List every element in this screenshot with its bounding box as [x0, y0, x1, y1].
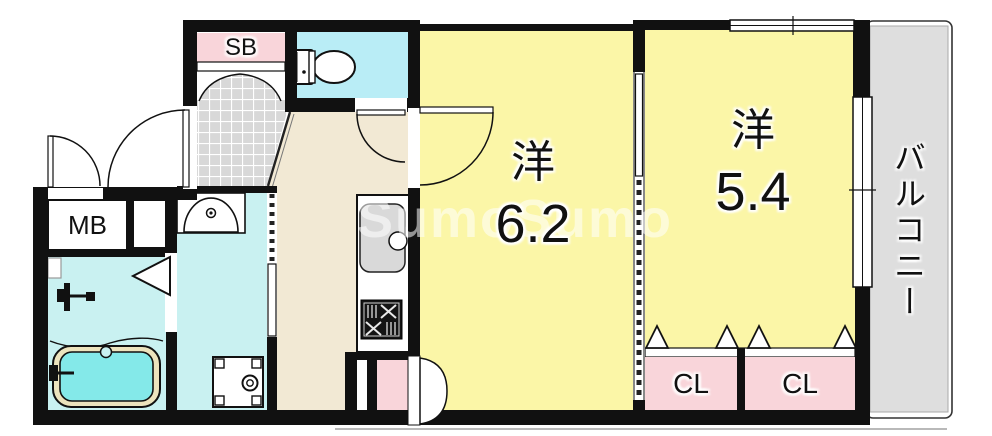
shoe-box-label: SB — [197, 33, 285, 62]
bathtub-icon — [49, 338, 163, 407]
floor-plan-page: SumoSumo SB MB 洋 6.2 洋 5.4 CL CL バルコニー — [0, 0, 992, 436]
meter-box-door — [48, 136, 103, 199]
room2-label: 洋 5.4 — [653, 101, 853, 223]
closet-1-label: CL — [645, 357, 737, 410]
closet-2-label: CL — [745, 357, 855, 410]
pipe-space — [357, 360, 367, 410]
washroom-sliding-door — [267, 193, 277, 337]
room2-size: 5.4 — [653, 161, 853, 223]
meter-box-label: MB — [48, 200, 127, 250]
room2-type: 洋 — [653, 101, 853, 161]
stove-icon — [361, 300, 402, 339]
pipe-shaft-box — [133, 200, 166, 248]
entrance-door — [108, 106, 197, 189]
toilet-icon — [292, 50, 355, 84]
washing-machine-icon — [213, 357, 263, 407]
room1-label: 洋 6.2 — [433, 133, 633, 255]
bath-window — [48, 258, 61, 278]
hall-storage-floor — [377, 360, 408, 410]
room1-type: 洋 — [433, 133, 633, 193]
room1-size: 6.2 — [433, 193, 633, 255]
balcony-label: バルコニー — [882, 106, 934, 356]
window-balcony — [849, 97, 876, 287]
